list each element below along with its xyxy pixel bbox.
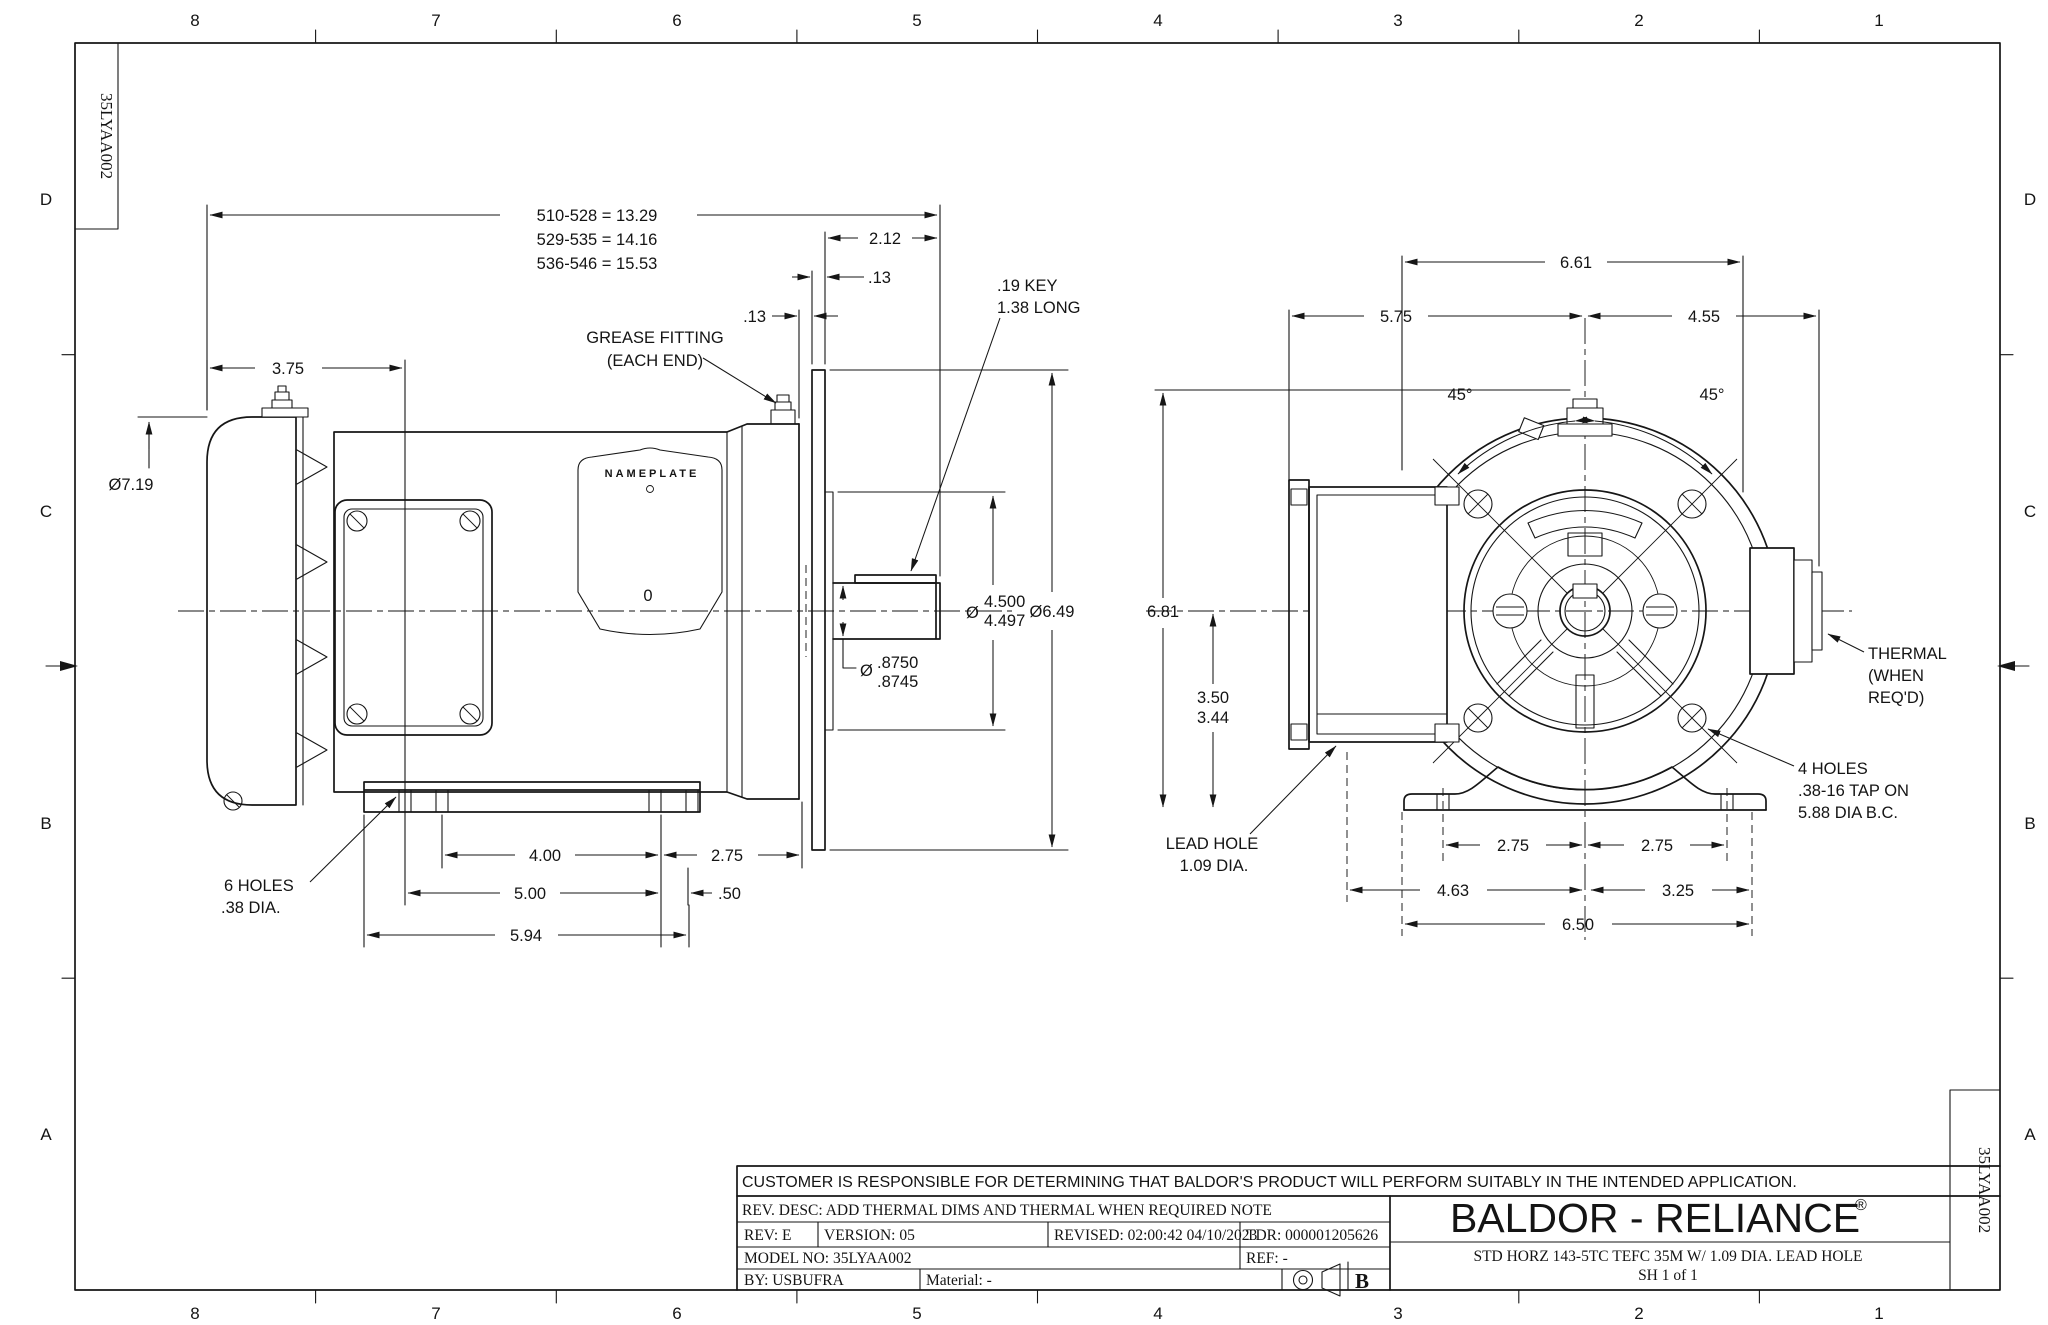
dim-angle-left: 45°: [1448, 386, 1473, 404]
zone-col-label: 8: [190, 1304, 199, 1323]
dim-shaft-phi: Ø: [860, 662, 873, 680]
dim-ctr-height-lo: 3.44: [1197, 709, 1229, 727]
zone-row-label: D: [40, 190, 52, 209]
zone-col-label: 4: [1153, 1304, 1162, 1323]
by: BY: USBUFRA: [744, 1272, 845, 1289]
conduit-box: [1289, 480, 1459, 749]
dim-overall-1: 510-528 = 13.29: [537, 207, 658, 225]
dim-base-len: 5.94: [510, 927, 542, 945]
material: Material: -: [926, 1272, 992, 1289]
zone-col-label: 8: [190, 11, 199, 30]
lead-note-2: 1.09 DIA.: [1180, 857, 1249, 875]
key-note-1: .19 KEY: [997, 277, 1058, 295]
title-block: CUSTOMER IS RESPONSIBLE FOR DETERMINING …: [737, 1166, 2000, 1296]
doc-number: 35LYAA002: [97, 93, 116, 179]
dim-fan-od: Ø7.19: [109, 476, 154, 494]
drawing-title-2: SH 1 of 1: [1638, 1267, 1698, 1284]
tap-note-2: .38-16 TAP ON: [1798, 782, 1909, 800]
zone-col-label: 7: [431, 11, 440, 30]
grease-fitting-symbol: [771, 395, 795, 424]
holes-note-1: 6 HOLES: [224, 877, 294, 895]
version: VERSION: 05: [824, 1227, 915, 1244]
dim-angle-right: 45°: [1700, 386, 1725, 404]
dim-gap-a: .13: [868, 269, 891, 287]
drawing-sheet: 8 7 6 5 4 3 2 1 8 7 6 5 4 3 2 1 D C B A …: [0, 0, 2048, 1325]
dim-foot-span2: 5.00: [514, 885, 546, 903]
zone-col-label: 3: [1393, 11, 1402, 30]
grease-note-2: (EACH END): [607, 352, 703, 370]
size-letter: B: [1355, 1269, 1369, 1293]
zone-col-label: 6: [672, 11, 681, 30]
dim-left-half: 5.75: [1380, 308, 1412, 326]
key-note-2: 1.38 LONG: [997, 299, 1080, 317]
tap-note-3: 5.88 DIA B.C.: [1798, 804, 1898, 822]
nameplate-hole-label: 0: [643, 587, 652, 605]
zone-col-label: 3: [1393, 1304, 1402, 1323]
zone-row-label: A: [40, 1125, 52, 1144]
dim-fan-to-hole: 3.75: [272, 360, 304, 378]
doc-number: 35LYAA002: [1975, 1147, 1994, 1233]
doc-number-box-bottom-right: 35LYAA002: [1950, 1090, 2000, 1290]
zone-row-label: C: [2024, 502, 2036, 521]
zone-col-label: 5: [912, 1304, 921, 1323]
dim-base-r: 3.25: [1662, 882, 1694, 900]
tap-hole: [1678, 704, 1706, 732]
dim-foot-span: 4.00: [529, 847, 561, 865]
zone-row-label: B: [40, 814, 51, 833]
brand-registered-icon: ®: [1855, 1197, 1867, 1214]
dim-right-half: 4.55: [1688, 308, 1720, 326]
lead-note-1: LEAD HOLE: [1166, 835, 1259, 853]
rev-desc: REV. DESC: ADD THERMAL DIMS AND THERMAL …: [742, 1202, 1272, 1219]
thermal-note-2: (WHEN: [1868, 667, 1924, 685]
dim-rabbet-phi: Ø: [966, 604, 979, 622]
zone-col-label: 1: [1874, 11, 1883, 30]
junction-box: [335, 500, 492, 735]
thermal-boss: [1750, 548, 1822, 674]
nameplate-label: NAMEPLATE: [605, 468, 700, 480]
dim-rabbet-hi: 4.500: [984, 593, 1025, 611]
dim-gap-b: .13: [743, 308, 766, 326]
thermal-note-1: THERMAL: [1868, 645, 1947, 663]
drawing-title-1: STD HORZ 143-5TC TEFC 35M W/ 1.09 DIA. L…: [1473, 1248, 1862, 1265]
nameplate: NAMEPLATE 0: [578, 448, 722, 635]
dim-shaft-hi: .8750: [877, 654, 918, 672]
zone-row-label: D: [2024, 190, 2036, 209]
disclaimer-text: CUSTOMER IS RESPONSIBLE FOR DETERMINING …: [742, 1174, 1797, 1191]
zone-row-label: A: [2024, 1125, 2036, 1144]
grease-note-1: GREASE FITTING: [586, 329, 724, 347]
grease-fitting-symbol: [262, 386, 308, 417]
sheet-frame: 8 7 6 5 4 3 2 1 8 7 6 5 4 3 2 1 D C B A …: [40, 11, 2036, 1323]
dim-overall-2: 529-535 = 14.16: [537, 231, 658, 249]
zone-col-label: 5: [912, 11, 921, 30]
zone-col-label: 6: [672, 1304, 681, 1323]
zone-col-label: 2: [1634, 1304, 1643, 1323]
dim-width-top: 6.61: [1560, 254, 1592, 272]
tap-hole: [1464, 704, 1492, 732]
tap-hole: [1464, 490, 1492, 518]
model-no: MODEL NO: 35LYAA002: [744, 1250, 912, 1267]
revised: REVISED: 02:00:42 04/10/2023: [1054, 1227, 1257, 1244]
dim-ctr-height-hi: 3.50: [1197, 689, 1229, 707]
dim-base-w: 6.50: [1562, 916, 1594, 934]
ref: REF: -: [1246, 1250, 1288, 1267]
zone-col-label: 1: [1874, 1304, 1883, 1323]
tap-note-1: 4 HOLES: [1798, 760, 1868, 778]
dim-flange-od: Ø6.49: [1030, 603, 1075, 621]
rev: REV: E: [744, 1227, 792, 1244]
dim-edge-off: .50: [718, 885, 741, 903]
dim-height-overall: 6.81: [1147, 603, 1179, 621]
dim-shaft-lo: .8745: [877, 673, 918, 691]
zone-col-label: 2: [1634, 11, 1643, 30]
doc-number-box-top-left: 35LYAA002: [75, 43, 118, 229]
zone-row-label: C: [40, 502, 52, 521]
motor-side-view: NAMEPLATE 0 510-528 = 13.29 529-535 = 14…: [109, 205, 1081, 947]
tap-hole: [1678, 490, 1706, 518]
brand-name: BALDOR - RELIANCE: [1450, 1195, 1860, 1241]
dim-base-l: 4.63: [1437, 882, 1469, 900]
zone-col-label: 4: [1153, 11, 1162, 30]
holes-note-2: .38 DIA.: [221, 899, 281, 917]
dim-overall-3: 536-546 = 15.53: [537, 255, 658, 273]
dim-rabbet-lo: 4.497: [984, 612, 1025, 630]
dim-foot-l: 2.75: [1497, 837, 1529, 855]
tdr: TDR: 000001205626: [1246, 1227, 1378, 1244]
thermal-note-3: REQ'D): [1868, 689, 1924, 707]
dim-foot-r: 2.75: [1641, 837, 1673, 855]
dim-shaft-ext: 2.12: [869, 230, 901, 248]
motor-end-view: 6.61 5.75 4.55 45° 45° 6.81 3.50 3.44 LE…: [1146, 254, 1947, 940]
zone-col-label: 7: [431, 1304, 440, 1323]
zone-row-label: B: [2024, 814, 2035, 833]
dim-foot-to-face: 2.75: [711, 847, 743, 865]
